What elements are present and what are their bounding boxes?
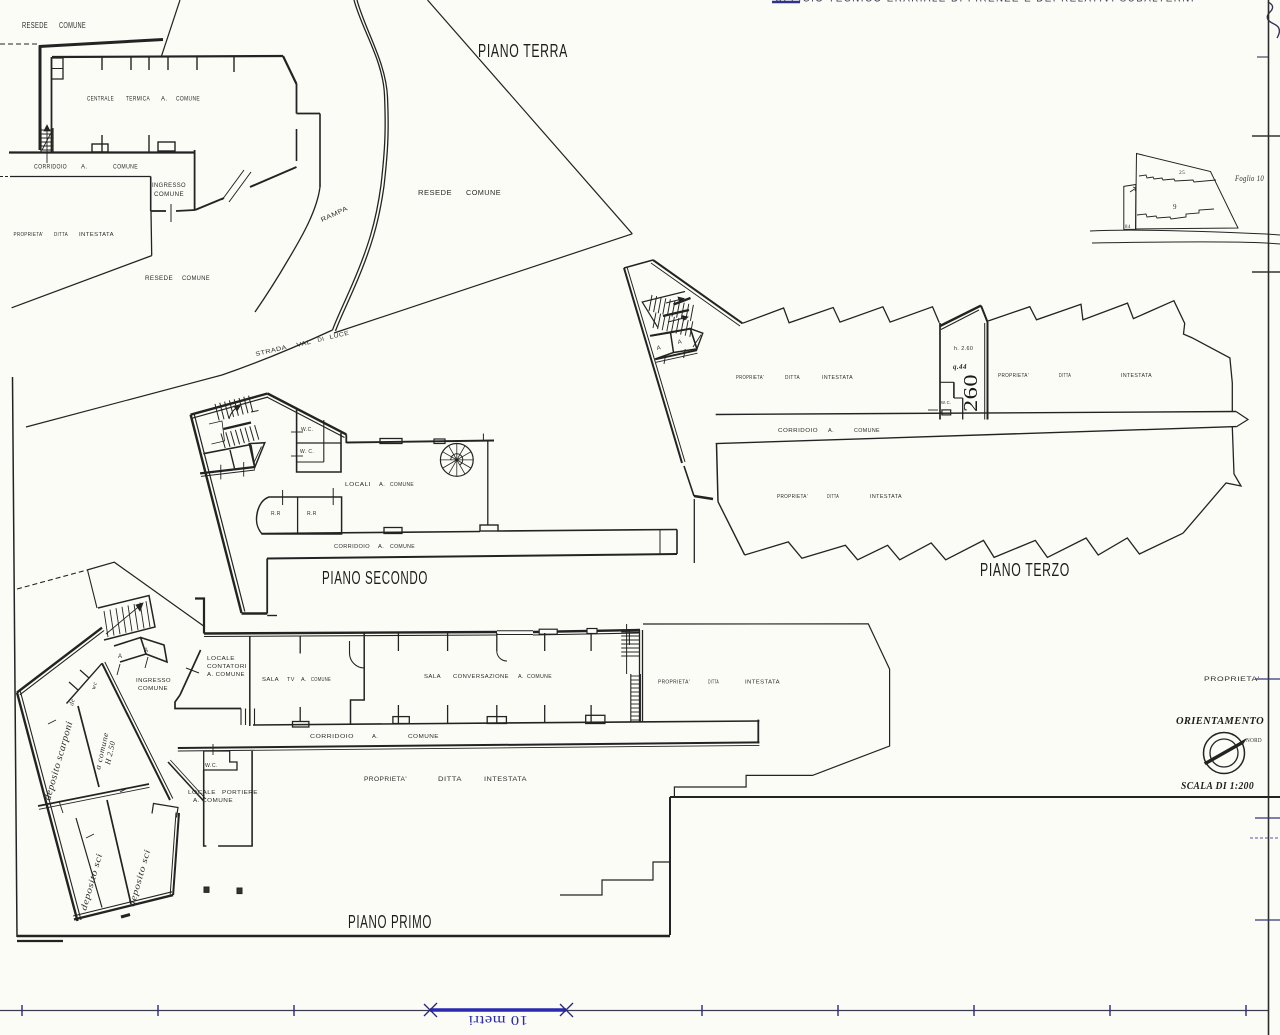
svg-text:PIANO TERZO: PIANO TERZO: [980, 559, 1070, 580]
svg-text:COMUNE: COMUNE: [176, 97, 200, 103]
svg-text:COMUNE: COMUNE: [390, 482, 414, 488]
svg-text:CORRIDOIO: CORRIDOIO: [334, 544, 370, 550]
svg-text:COMUNE: COMUNE: [854, 428, 880, 434]
svg-text:RESEDE: RESEDE: [145, 275, 173, 282]
svg-text:DITTA: DITTA: [708, 680, 719, 686]
svg-text:NORD: NORD: [1246, 738, 1262, 744]
svg-text:DITTA: DITTA: [54, 232, 68, 238]
svg-text:PIANO PRIMO: PIANO PRIMO: [348, 911, 432, 932]
svg-text:SCALA DI 1:200: SCALA DI 1:200: [1181, 781, 1254, 792]
svg-text:A. COMUNE: A. COMUNE: [193, 798, 233, 804]
svg-text:COMUNE: COMUNE: [311, 677, 331, 683]
svg-text:CONVERSAZIONE: CONVERSAZIONE: [453, 674, 509, 680]
svg-text:9: 9: [1173, 203, 1177, 211]
svg-text:PROPRIETA': PROPRIETA': [998, 373, 1029, 379]
svg-text:INGRESSO: INGRESSO: [152, 182, 186, 189]
svg-text:COMUNE: COMUNE: [466, 190, 501, 197]
svg-text:CONTATORI: CONTATORI: [207, 664, 247, 670]
svg-text:25: 25: [1179, 170, 1185, 176]
svg-text:A.: A.: [518, 674, 524, 680]
svg-text:LOCALI: LOCALI: [345, 482, 371, 488]
svg-text:A: A: [144, 648, 148, 654]
svg-text:A: A: [118, 654, 122, 660]
svg-text:COMUNE: COMUNE: [59, 21, 86, 30]
svg-text:TERMICA: TERMICA: [126, 97, 150, 103]
svg-text:COMUNE: COMUNE: [527, 674, 552, 680]
svg-text:A.: A.: [828, 428, 834, 434]
svg-text:INTESTATA: INTESTATA: [484, 776, 528, 783]
svg-text:DITTA: DITTA: [785, 375, 800, 381]
svg-text:PROPRIETA': PROPRIETA': [658, 680, 690, 686]
svg-text:PROPRIETA': PROPRIETA': [14, 232, 44, 238]
svg-text:COMUNE: COMUNE: [154, 191, 184, 198]
svg-text:INTESTATA: INTESTATA: [1121, 373, 1152, 379]
svg-text:W.C.: W.C.: [941, 400, 952, 405]
svg-text:R.R: R.R: [271, 511, 281, 517]
svg-text:10 metri: 10 metri: [468, 1012, 528, 1027]
svg-text:PIANO TERRA: PIANO TERRA: [478, 40, 568, 61]
svg-text:CORRIDOIO: CORRIDOIO: [778, 428, 818, 434]
svg-text:CORRIDOIO: CORRIDOIO: [34, 165, 67, 171]
svg-text:CORRIDOIO: CORRIDOIO: [310, 734, 354, 740]
svg-text:PROPRIETA': PROPRIETA': [364, 776, 407, 783]
svg-text:R.R: R.R: [307, 511, 317, 517]
svg-text:CENTRALE: CENTRALE: [87, 97, 114, 103]
svg-text:LOCALE: LOCALE: [207, 656, 235, 662]
svg-text:COMUNE: COMUNE: [408, 734, 439, 740]
svg-text:INTESTATA: INTESTATA: [745, 680, 780, 686]
svg-text:A.: A.: [81, 165, 87, 171]
svg-text:RESEDE: RESEDE: [418, 190, 452, 197]
svg-text:A.: A.: [379, 482, 385, 488]
svg-text:INTESTATA: INTESTATA: [870, 494, 902, 500]
svg-text:RESEDE: RESEDE: [22, 21, 48, 30]
svg-text:A.: A.: [161, 97, 167, 103]
svg-text:UFFICIO TECNICO ERARIALE DI FI: UFFICIO TECNICO ERARIALE DI FIRENZE E DE…: [775, 0, 1195, 4]
svg-text:PROPRIETA': PROPRIETA': [736, 375, 764, 381]
svg-text:W. C.: W. C.: [300, 449, 314, 455]
svg-text:DITTA: DITTA: [1059, 373, 1071, 379]
svg-text:A.: A.: [301, 677, 307, 683]
svg-text:ORIENTAMENTO: ORIENTAMENTO: [1176, 715, 1264, 727]
svg-text:COMUNE: COMUNE: [182, 275, 210, 282]
svg-text:PROPRIETA': PROPRIETA': [777, 494, 808, 500]
svg-text:DITTA: DITTA: [827, 494, 839, 500]
svg-text:DITTA: DITTA: [438, 776, 463, 783]
svg-text:PROPRIETA': PROPRIETA': [1204, 676, 1260, 683]
svg-text:A. COMUNE: A. COMUNE: [207, 672, 245, 678]
svg-text:INGRESSO: INGRESSO: [136, 678, 171, 684]
svg-text:SALA: SALA: [262, 677, 279, 683]
svg-text:W.C.: W.C.: [205, 763, 218, 769]
svg-text:TV: TV: [287, 677, 295, 683]
svg-text:COMUNE: COMUNE: [390, 544, 415, 550]
svg-text:Foglio 10: Foglio 10: [1234, 173, 1264, 183]
svg-text:84: 84: [1125, 225, 1131, 230]
svg-text:COMUNE: COMUNE: [113, 165, 138, 171]
svg-text:PIANO SECONDO: PIANO SECONDO: [322, 567, 428, 588]
svg-text:q.44: q.44: [953, 363, 967, 371]
svg-text:SALA: SALA: [424, 674, 441, 680]
svg-text:h. 2.60: h. 2.60: [954, 346, 973, 352]
svg-text:COMUNE: COMUNE: [138, 686, 168, 692]
svg-text:A.: A.: [378, 544, 384, 550]
svg-text:INTESTATA: INTESTATA: [822, 375, 853, 381]
svg-text:INTESTATA: INTESTATA: [79, 232, 114, 238]
svg-text:PORTIERE: PORTIERE: [222, 790, 258, 796]
svg-text:A.: A.: [372, 734, 378, 740]
